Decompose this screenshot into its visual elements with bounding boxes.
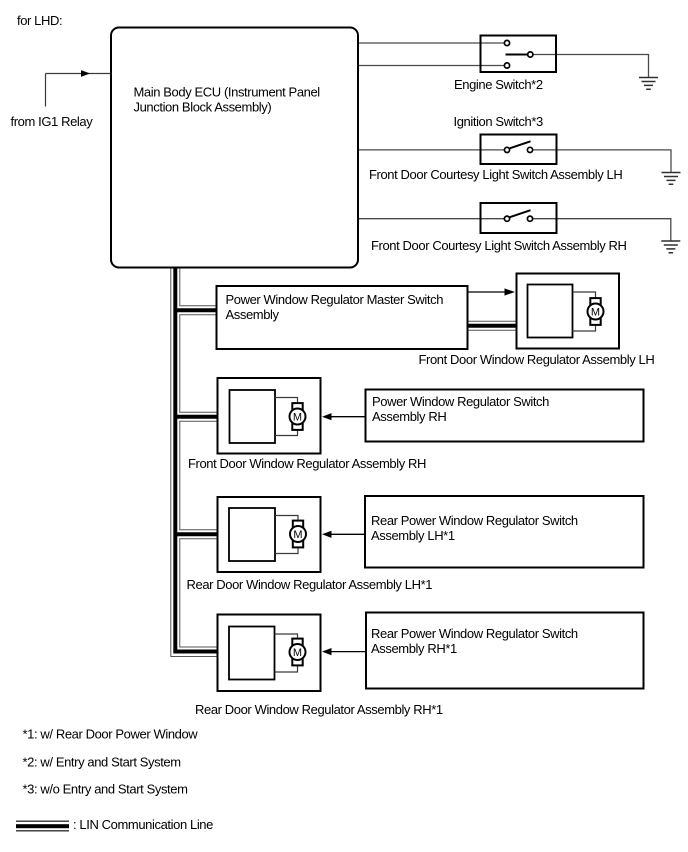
svg-text:Junction Block Assembly): Junction Block Assembly) — [134, 100, 272, 115]
svg-text:from IG1 Relay: from IG1 Relay — [11, 114, 94, 129]
svg-text:Front Door Window Regulator As: Front Door Window Regulator Assembly RH — [188, 456, 426, 471]
svg-text:Rear Door Window Regulator Ass: Rear Door Window Regulator Assembly LH*1 — [187, 577, 433, 592]
svg-text:M: M — [293, 412, 302, 424]
svg-text:Assembly: Assembly — [226, 307, 280, 322]
svg-text:Rear Door Window Regulator Ass: Rear Door Window Regulator Assembly RH*1 — [195, 702, 443, 717]
svg-text:Assembly RH: Assembly RH — [372, 409, 446, 424]
svg-text:Rear Power Window Regulator Sw: Rear Power Window Regulator Switch — [371, 513, 578, 528]
svg-text:Power Window Regulator Switch: Power Window Regulator Switch — [372, 394, 549, 409]
svg-text:Rear Power Window Regulator Sw: Rear Power Window Regulator Switch — [371, 626, 578, 641]
svg-text:*1: w/ Rear Door Power Window: *1: w/ Rear Door Power Window — [23, 727, 199, 742]
svg-text:Power Window Regulator Master: Power Window Regulator Master Switch — [226, 292, 444, 307]
svg-text:Front Door Courtesy Light Swit: Front Door Courtesy Light Switch Assembl… — [369, 167, 622, 182]
svg-text:M: M — [293, 529, 302, 541]
svg-text:*2: w/ Entry and Start System: *2: w/ Entry and Start System — [23, 755, 181, 770]
svg-text:M: M — [293, 647, 302, 659]
svg-text:Assembly LH*1: Assembly LH*1 — [371, 528, 455, 543]
svg-text:: LIN Communication Line: : LIN Communication Line — [73, 817, 213, 832]
svg-text:Main Body ECU (Instrument Pane: Main Body ECU (Instrument Panel — [134, 85, 321, 100]
svg-text:Engine Switch*2: Engine Switch*2 — [454, 77, 543, 92]
svg-text:Ignition Switch*3: Ignition Switch*3 — [454, 114, 543, 129]
svg-text:Front Door Window Regulator As: Front Door Window Regulator Assembly LH — [419, 352, 655, 367]
svg-text:*3: w/o Entry and Start System: *3: w/o Entry and Start System — [23, 782, 188, 797]
svg-text:Assembly RH*1: Assembly RH*1 — [371, 641, 457, 656]
svg-text:for LHD:: for LHD: — [17, 13, 62, 28]
svg-text:M: M — [591, 307, 600, 319]
svg-text:Front Door Courtesy Light Swit: Front Door Courtesy Light Switch Assembl… — [371, 238, 627, 253]
